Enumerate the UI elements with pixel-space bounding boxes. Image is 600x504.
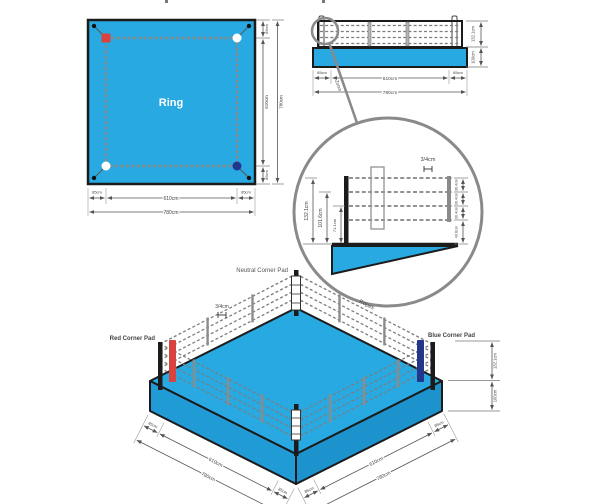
neutral-corner-pad-label: Neutral Corner Pad [236,268,288,274]
corner-post [344,176,349,244]
boxing-ring-diagram: Ring 85cm 610cm 85cm 780cm 85cm 610cm 85… [0,0,600,504]
dim-label: 85cm [453,70,463,75]
dim-label: 132.1cm [493,352,498,369]
dim-label: 30.4cm [455,193,459,205]
far-post [447,176,451,222]
blue-corner-marker [233,162,242,171]
neutral-corner-pad [292,276,301,310]
rope-strap [368,22,371,46]
platform-corner-dot [92,176,96,180]
cropped-title-artifact [322,0,325,3]
isometric-view: Neutral Corner Pad Red Corner Pad Blue C… [110,268,500,504]
red-corner-pad-label: Red Corner Pad [110,336,156,342]
dim-label: 780cm [200,471,216,483]
dim-label: 780cm [383,90,397,96]
dim-label: 610cm [207,457,223,469]
dim-label: 30.4cm [455,207,459,219]
dim-label: 30.4cm [455,179,459,191]
rope-thickness-label: 3/4cm [421,157,436,163]
white-corner-marker [233,34,242,43]
apron-wedge [332,246,458,274]
platform-corner-dot [247,176,251,180]
dim-label: 132.1cm [304,201,310,220]
dim-label: 100cm [471,51,476,64]
ring-label: Ring [159,97,183,109]
dim-label: 85cm [241,190,251,195]
diagram-canvas: Ring 85cm 610cm 85cm 780cm 85cm 610cm 85… [0,0,600,504]
dim-ext [314,480,321,494]
red-corner-post [158,342,163,390]
dim-label: 610cm [368,456,384,468]
dim-label: 85cm [264,169,269,179]
top-view: Ring 85cm 610cm 85cm 780cm 85cm 610cm 85… [88,20,284,216]
dim-label: 610cm [163,196,178,202]
red-corner-pad [169,340,176,382]
rope-strap [406,22,409,46]
detail-view: 3/4cm 132.1cm 101.6cm 71.1cm 30.4cm 30.4… [294,118,482,306]
dim-label: 610cm [264,95,269,109]
dim-label: 610cm [383,76,397,82]
red-corner-marker [102,34,111,43]
dim-label: 100cm [493,389,498,402]
front-corner-pad [292,410,301,440]
dim-label: 780cm [376,470,392,482]
dim-label: 71.1cm [332,218,337,232]
blue-corner-post [431,342,436,390]
dim-label: 85cm [264,23,269,33]
cropped-title-artifact [165,0,168,3]
blue-corner-pad [417,340,424,382]
dim-label: 85cm [317,70,327,75]
dim-label: 85cm [92,190,102,195]
rope-thickness-label: 3/4cm [215,304,229,310]
dim-label: 780cm [279,95,284,109]
platform-corner-dot [92,24,96,28]
white-corner-marker [102,162,111,171]
platform-corner-dot [247,24,251,28]
side-view: 132.1cm 100cm 85cm 610cm 85cm 780cm Zoom [312,16,488,123]
blue-corner-pad-label: Blue Corner Pad [428,333,475,339]
dim-label: 132.1cm [471,25,476,42]
dim-label: 40.6cm [455,226,459,238]
dim-ext [134,415,148,444]
dim-label: 780cm [163,210,178,216]
dim-ext [271,481,278,495]
dim-ext [444,414,458,443]
dim-label: 101.6cm [318,208,324,227]
